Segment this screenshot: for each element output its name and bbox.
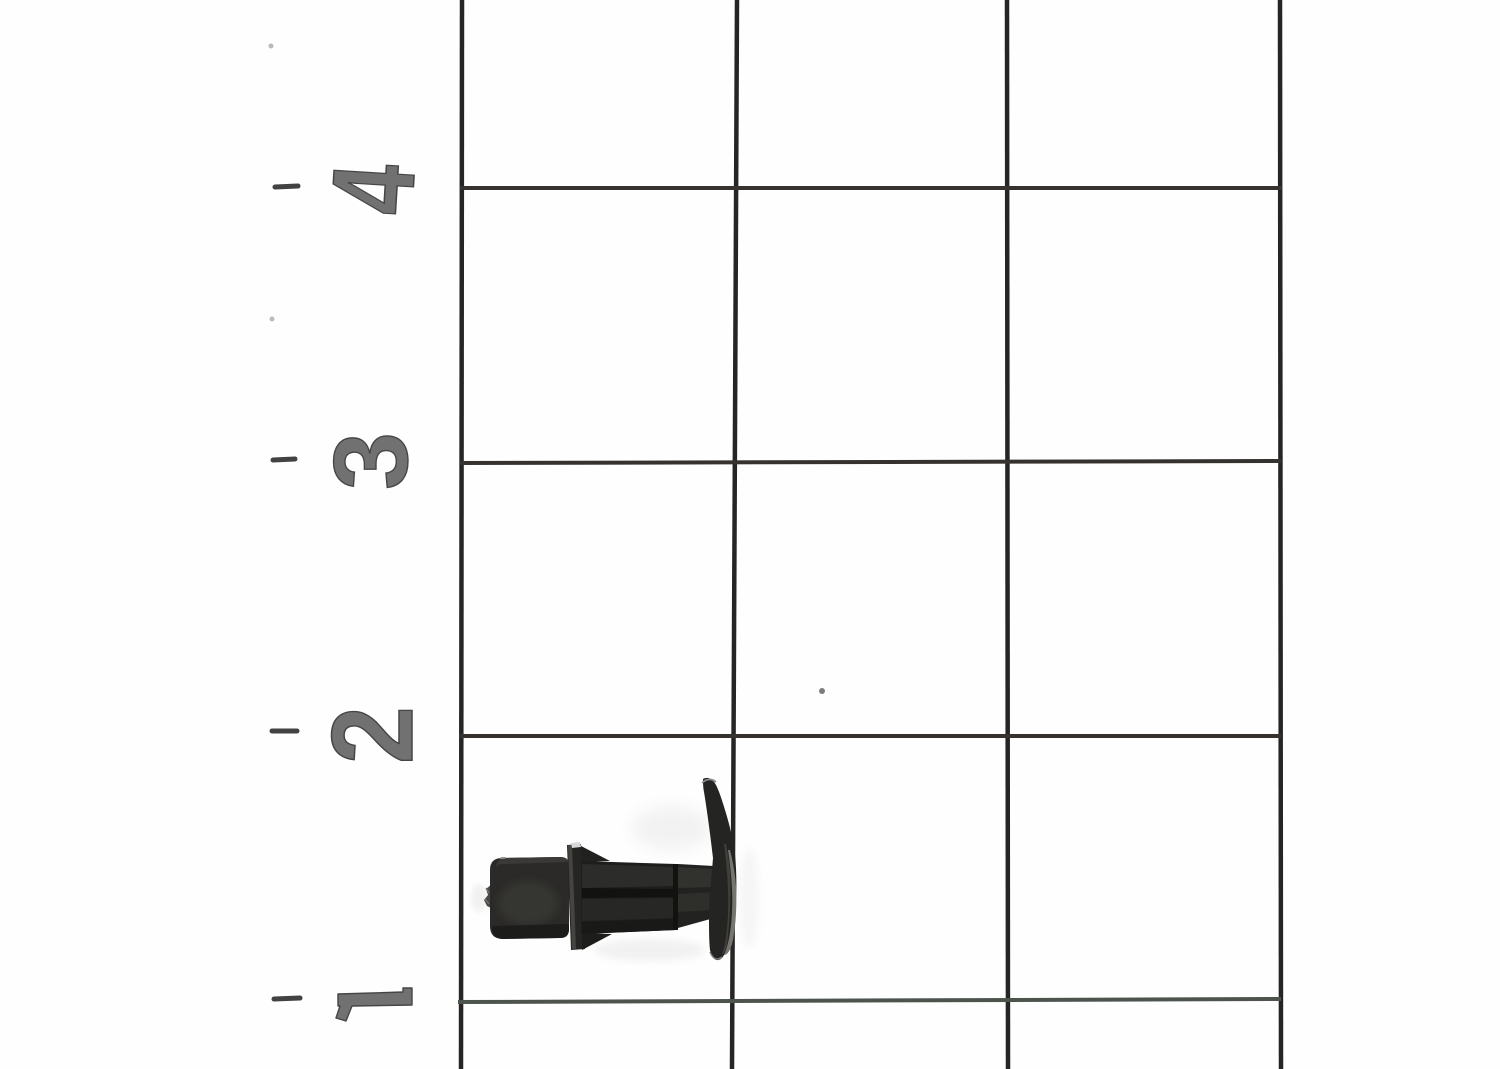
- svg-text:2: 2: [309, 706, 437, 764]
- svg-text:3: 3: [314, 432, 431, 490]
- svg-text:4: 4: [308, 160, 441, 218]
